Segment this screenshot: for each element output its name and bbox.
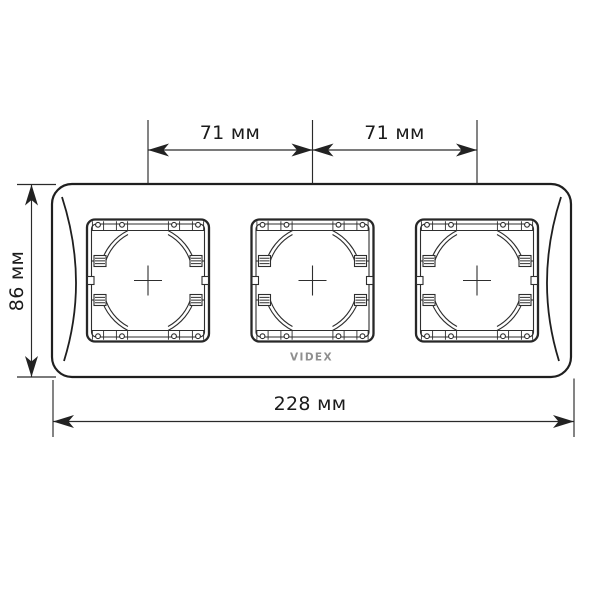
dimension-diagram: VIDEX 71 мм 71 мм 86 мм 228 мм <box>0 0 600 600</box>
socket-opening-1 <box>87 220 209 342</box>
dimension-label-span-left: 71 мм <box>200 122 260 144</box>
brand-logo: VIDEX <box>290 352 333 364</box>
dimension-height: 86 мм <box>6 185 56 378</box>
diagram-canvas: VIDEX 71 мм 71 мм 86 мм 228 мм <box>0 0 600 600</box>
extension-lines-top <box>148 120 477 184</box>
dimension-label-height: 86 мм <box>6 251 28 311</box>
dimension-label-width: 228 мм <box>274 393 347 415</box>
dimension-width: 228 мм <box>53 379 574 438</box>
dimension-label-span-right: 71 мм <box>364 122 424 144</box>
faceplate: VIDEX <box>52 184 571 377</box>
socket-opening-2 <box>252 220 374 342</box>
dimension-top-spans: 71 мм 71 мм <box>148 120 477 184</box>
socket-opening-3 <box>416 220 538 342</box>
